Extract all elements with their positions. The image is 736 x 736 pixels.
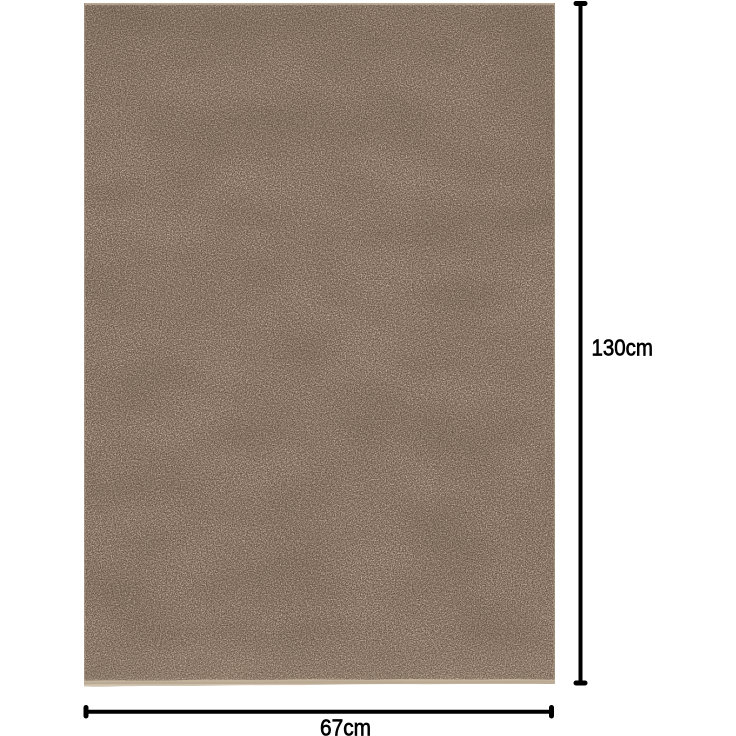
svg-text:130cm: 130cm [592,335,654,361]
svg-text:67cm: 67cm [320,715,371,736]
